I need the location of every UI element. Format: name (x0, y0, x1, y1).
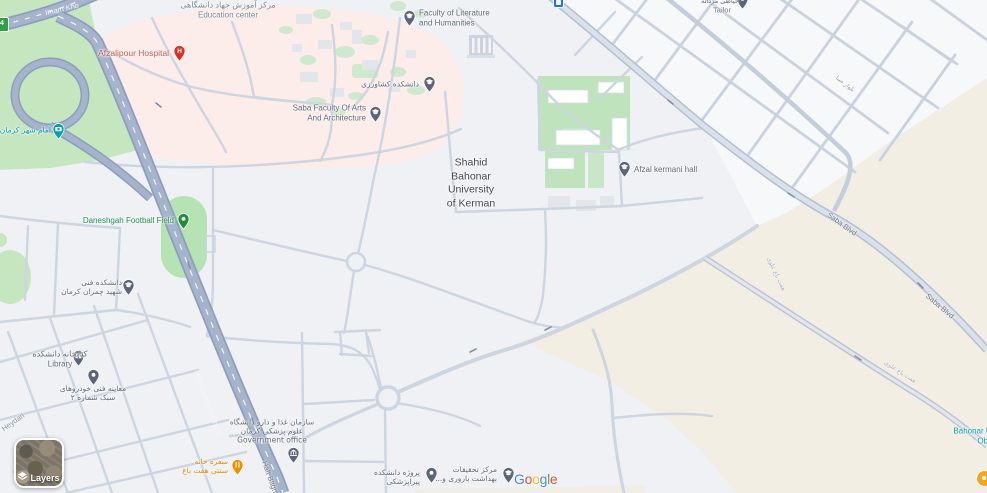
route-4-shield-icon: 4 (0, 17, 9, 32)
education-pin-icon[interactable] (423, 76, 436, 93)
layers-label: Layers (30, 473, 59, 483)
poi-label-football-field[interactable]: Daneshgah Football Field (83, 216, 174, 226)
poi-label-research-center[interactable]: مرکز تحقیقات بهداشت باروری و... (435, 465, 497, 483)
education-pin-icon[interactable] (122, 279, 135, 296)
education-pin-icon[interactable] (618, 161, 631, 178)
poi-label-tailor[interactable]: Tailor (713, 6, 731, 15)
layers-icon (18, 472, 27, 483)
layers-control[interactable]: Layers (14, 438, 64, 488)
google-logo-letter: e (550, 471, 558, 487)
education-pin-icon[interactable] (403, 10, 416, 27)
google-logo-letter: G (514, 471, 525, 487)
poi-label-education-center[interactable]: مرکز آموزش جهاد دانشگاهی Education cente… (180, 0, 275, 19)
poi-label-vehicle-inspection[interactable]: معاینه فنی خودروهای سبک شماره ۲ (60, 384, 126, 402)
svg-text:H: H (177, 48, 182, 55)
park-pin-icon[interactable] (177, 213, 190, 230)
hospital-pin-icon[interactable]: H (173, 45, 186, 62)
poi-label-university-main[interactable]: Shahid Bahonar University of Kerman (447, 157, 495, 212)
government-pin-icon[interactable] (287, 447, 300, 464)
poi-label-chamran-faculty[interactable]: دانشکده فنی شهید چمران کرمان (61, 278, 122, 296)
education-pin-icon[interactable] (502, 467, 515, 484)
roundabout-south (377, 387, 399, 409)
area-hedge-2 (588, 152, 604, 188)
restaurant-pin-icon[interactable] (231, 459, 244, 476)
poi-label-afzal-kermani-hall[interactable]: Afzal kermani hall (634, 165, 697, 175)
google-logo-letter: g (540, 471, 548, 487)
poi-label-agriculture-faculty[interactable]: دانشکده کشاورزی (361, 80, 419, 89)
education-pin-icon[interactable] (369, 106, 382, 123)
bus-station-icon[interactable] (553, 0, 564, 8)
poi-label-observatory[interactable]: Bahonar University Observatory (926, 426, 987, 445)
cutoff-orange-pin-icon[interactable] (976, 470, 987, 487)
poi-label-faculty-literature[interactable]: Faculty of Literature and Humanities (419, 8, 490, 27)
map-viewport[interactable]: Imam Kho Mostafa Khomeini St Haft Bagh S… (0, 0, 987, 493)
google-logo-letter: o (532, 471, 540, 487)
poi-label-paramedical-project[interactable]: پروژه دانشکده پیراپزشکی (374, 468, 420, 486)
poi-label-saba-faculty[interactable]: Saba Faculty Of Arts And Architecture (293, 103, 366, 122)
poi-label-imam-shahr[interactable]: امام شهر کرمان (0, 126, 51, 135)
poi-label-afzalipour-hospital[interactable]: Afzalipour Hospital (98, 48, 169, 58)
poi-label-haft-bagh-restaurant[interactable]: سفره خانه سنتی هفت باغ (182, 457, 228, 475)
attraction-camera-pin-icon[interactable] (52, 123, 65, 140)
poi-label-government-office[interactable]: سازمان غذا و دارو دانشگاه علوم پزشکی کرم… (230, 418, 314, 445)
roundabout-north (347, 253, 365, 271)
google-logo: Google (514, 471, 557, 487)
google-logo-letter: o (525, 471, 533, 487)
poi-label-library[interactable]: کتابخانه دانشکده Library (32, 349, 87, 368)
